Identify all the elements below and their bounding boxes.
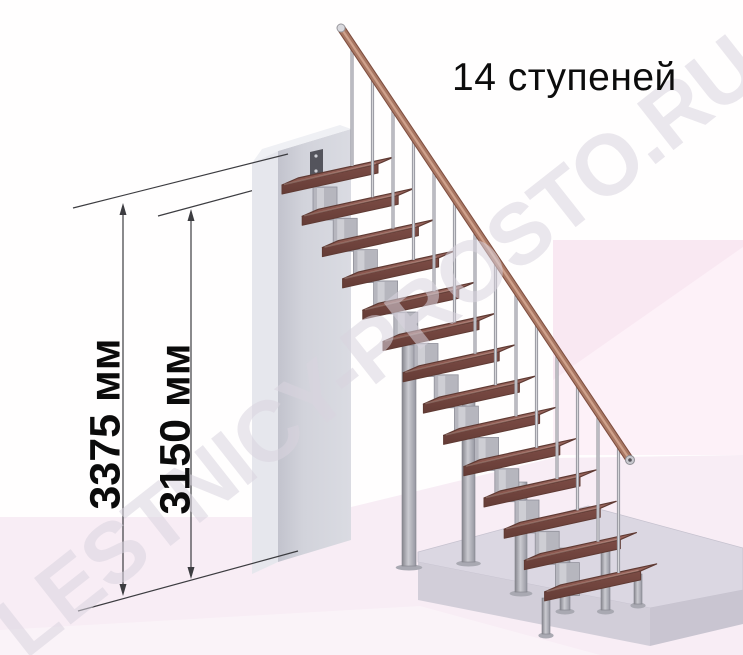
steps-count-label: 14 ступеней	[452, 56, 677, 100]
staircase-diagram: LESTNICY-PROSTO.RU 14 ступеней 3375 мм 3…	[0, 0, 743, 655]
dimension-label-outer: 3375 мм	[82, 338, 131, 509]
dimension-label-inner: 3150 мм	[152, 343, 201, 514]
